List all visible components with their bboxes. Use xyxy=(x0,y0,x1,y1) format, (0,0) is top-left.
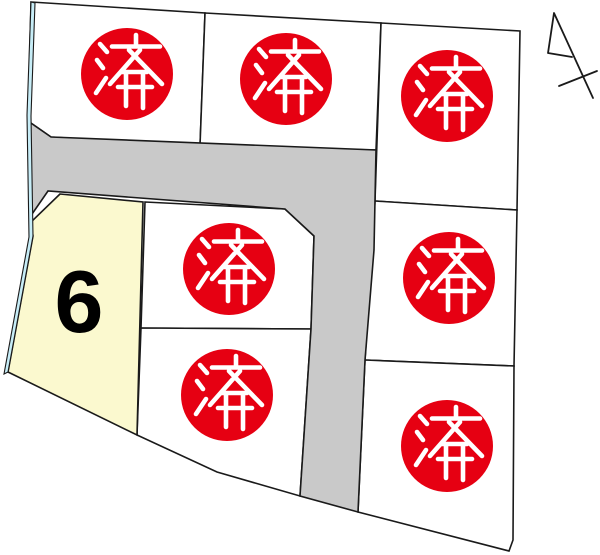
north-arrow-icon xyxy=(548,13,597,98)
sold-stamp-lower-center: 済 xyxy=(181,349,273,441)
sold-stamp-top-right: 済 xyxy=(401,50,493,142)
plot-map: 済 済 済 済 済 xyxy=(0,0,600,555)
sold-stamp-bottom-right: 済 xyxy=(401,400,493,492)
sold-stamp-top-center: 済 xyxy=(240,33,332,125)
sold-stamp-mid-center: 済 xyxy=(183,223,275,315)
plot-map-canvas: 済 済 済 済 済 xyxy=(0,0,600,555)
sold-stamp-mid-right: 済 xyxy=(403,232,495,324)
lot-6-number: 6 xyxy=(55,252,104,351)
sold-stamp-top-left: 済 xyxy=(81,28,173,120)
